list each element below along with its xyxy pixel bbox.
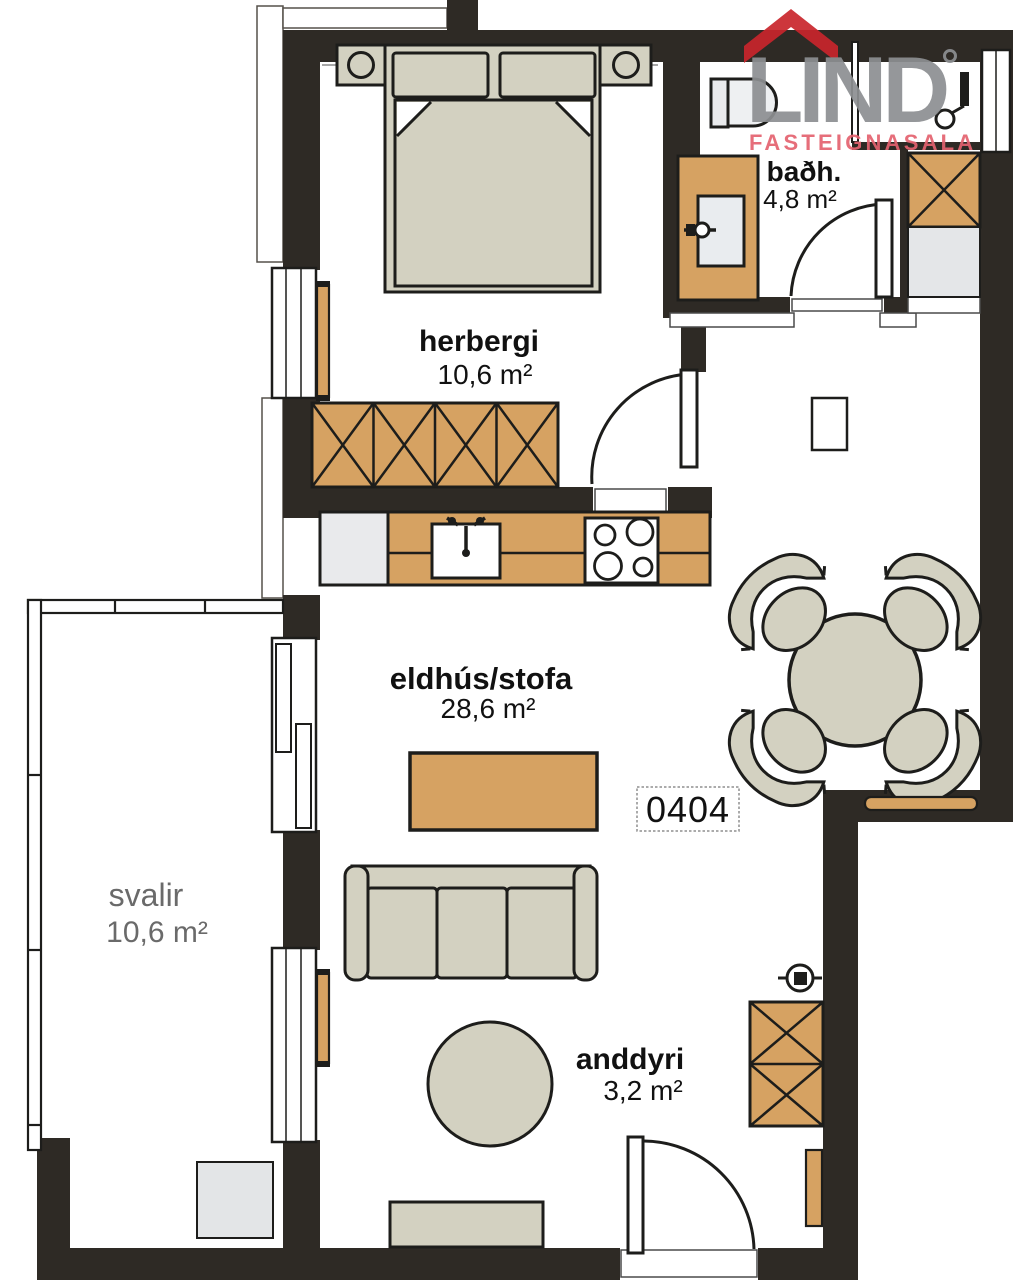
area-badherbergi: 4,8 m²	[763, 184, 837, 214]
floor-plan-drawing: herbergi 10,6 m² baðh. 4,8 m² eldhús/sto…	[0, 0, 1018, 1280]
unit-number: 0404	[646, 789, 730, 830]
valve-icon	[778, 965, 822, 991]
stove	[585, 518, 658, 583]
area-anddyri: 3,2 m²	[603, 1075, 682, 1106]
wall-bottom-living	[283, 1248, 620, 1280]
label-eldhus-stofa: eldhús/stofa	[390, 661, 573, 696]
bath-sill-right	[880, 313, 916, 327]
area-eldhus-stofa: 28,6 m²	[441, 693, 536, 724]
sofa	[345, 866, 597, 980]
entry-radiator	[806, 1150, 822, 1226]
dining-radiator	[865, 797, 977, 810]
sofa-cushion	[367, 888, 437, 978]
bedroom-radiator	[316, 281, 330, 401]
wall-bedroom-left-upper	[283, 30, 320, 270]
bedroom-wardrobe	[312, 403, 558, 487]
sofa-cushion	[437, 888, 507, 978]
wall-bottom-balcony	[37, 1248, 283, 1280]
living-radiator	[316, 969, 330, 1067]
label-svalir: svalir	[109, 877, 184, 913]
entrance-door	[628, 1137, 754, 1253]
sofa-cushion	[507, 888, 577, 978]
lamp-left-icon	[349, 53, 374, 78]
label-anddyri: anddyri	[576, 1043, 684, 1076]
living-furniture	[316, 534, 1001, 1247]
wall-living-left-b	[283, 830, 320, 950]
unit-number-badge: 0404	[637, 787, 739, 831]
rug	[428, 1022, 552, 1146]
bath-sill-left	[670, 313, 794, 327]
sofa-back	[352, 866, 590, 890]
pillow-right	[500, 53, 595, 97]
bedroom-door	[592, 370, 697, 484]
area-herbergi: 10,6 m²	[438, 359, 533, 390]
area-svalir: 10,6 m²	[106, 916, 208, 949]
bedroom-window	[272, 268, 316, 398]
balcony-railing	[28, 600, 283, 1150]
hall-closet	[908, 153, 980, 297]
bath-window	[982, 50, 1010, 152]
sofa-armrest-right	[574, 866, 597, 980]
bathroom-door	[791, 200, 892, 297]
label-herbergi: herbergi	[419, 325, 539, 358]
entry-furniture	[750, 965, 823, 1226]
bath-door-threshold	[792, 299, 882, 311]
wall-bottom-entry	[758, 1248, 858, 1280]
wall-living-left-a	[283, 595, 320, 640]
label-badherbergi: baðh.	[767, 156, 842, 187]
pillow-left	[393, 53, 488, 97]
wall-living-left-c	[283, 1140, 320, 1250]
logo-tagline: FASTEIGNASALA	[749, 130, 976, 155]
kitchen-sink	[432, 517, 500, 578]
shaft	[812, 398, 847, 450]
floor-plan: herbergi 10,6 m² baðh. 4,8 m² eldhús/sto…	[0, 0, 1018, 1280]
closet-shelf	[908, 227, 980, 297]
lamp-right-icon	[614, 53, 639, 78]
bedroom-furniture	[312, 45, 651, 487]
living-window	[272, 948, 316, 1142]
vanity-sink	[678, 156, 758, 300]
fridge	[320, 512, 388, 585]
railing-left	[28, 600, 41, 1150]
balcony-storage-box	[197, 1162, 273, 1238]
sideboard	[390, 1202, 543, 1247]
balcony-sliding-door	[272, 638, 316, 832]
entry-wardrobe	[750, 1002, 823, 1126]
sofa-armrest-left	[345, 866, 368, 980]
logo-brand: LIND	[746, 37, 946, 142]
double-bed	[385, 45, 600, 292]
closet-sill	[908, 297, 980, 313]
wall-anddyri-right	[823, 790, 858, 1280]
kitchen	[320, 512, 710, 585]
coffee-table	[410, 753, 597, 830]
bed-blanket	[395, 100, 592, 286]
wall-balcony-corner	[37, 1138, 70, 1250]
railing-top	[28, 600, 283, 613]
wall-chimney-block	[447, 0, 478, 32]
